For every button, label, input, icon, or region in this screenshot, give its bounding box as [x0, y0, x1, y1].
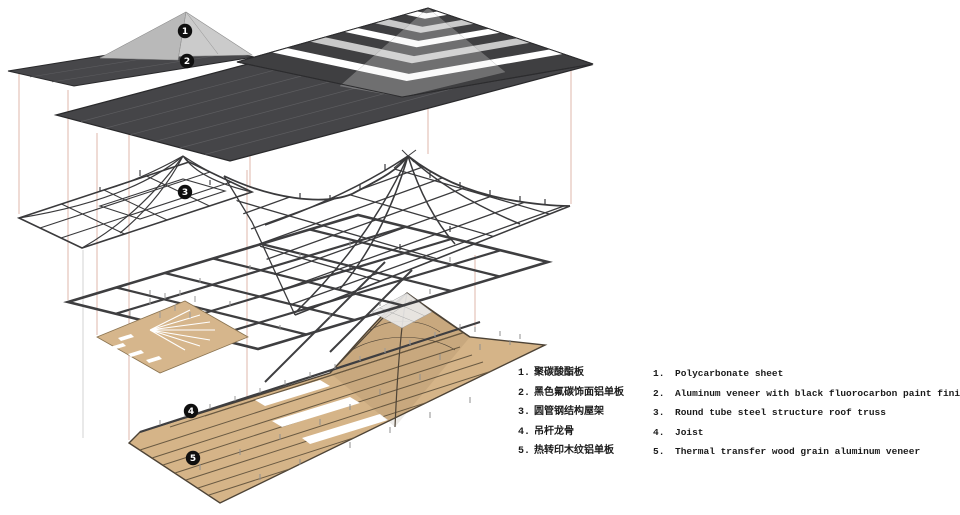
legend: 1.聚碳酸酯板 1.Polycarbonate sheet 2.黑色氟碳饰面铝单…	[518, 368, 960, 459]
legend-zh-item-2: 2.黑色氟碳饰面铝单板	[518, 388, 653, 401]
svg-text:4: 4	[188, 407, 194, 417]
badge-4: 4	[184, 404, 198, 418]
small-truss-cross-members	[40, 172, 231, 238]
legend-en-item-1: 1.Polycarbonate sheet	[653, 368, 960, 381]
layer-steel-truss-small	[19, 156, 252, 248]
legend-en-item-3: 3.Round tube steel structure roof truss	[653, 407, 960, 420]
legend-en-item-2: 2.Aluminum veneer with black fluorocarbo…	[653, 388, 960, 401]
badge-3: 3	[178, 185, 192, 199]
badge-5: 5	[186, 451, 200, 465]
badge-2: 2	[180, 54, 194, 68]
legend-zh-item-5: 5.热转印木纹铝单板	[518, 446, 653, 459]
svg-text:2: 2	[184, 57, 190, 67]
legend-zh-item-1: 1.聚碳酸酯板	[518, 368, 653, 381]
badge-1: 1	[178, 24, 192, 38]
legend-en-item-4: 4.Joist	[653, 427, 960, 440]
svg-text:1: 1	[182, 27, 188, 37]
legend-en-item-5: 5.Thermal transfer wood grain aluminum v…	[653, 446, 960, 459]
svg-text:3: 3	[182, 188, 188, 198]
diagram-stage: 1 2 3 4 5 1.聚碳酸酯板 1.Polycarbonate sheet …	[0, 0, 960, 515]
svg-text:5: 5	[190, 454, 196, 464]
legend-zh-item-4: 4.吊杆龙骨	[518, 427, 653, 440]
polycarbonate-pyramid-facet	[100, 12, 186, 60]
legend-zh-item-3: 3.圆管钢结构屋架	[518, 407, 653, 420]
